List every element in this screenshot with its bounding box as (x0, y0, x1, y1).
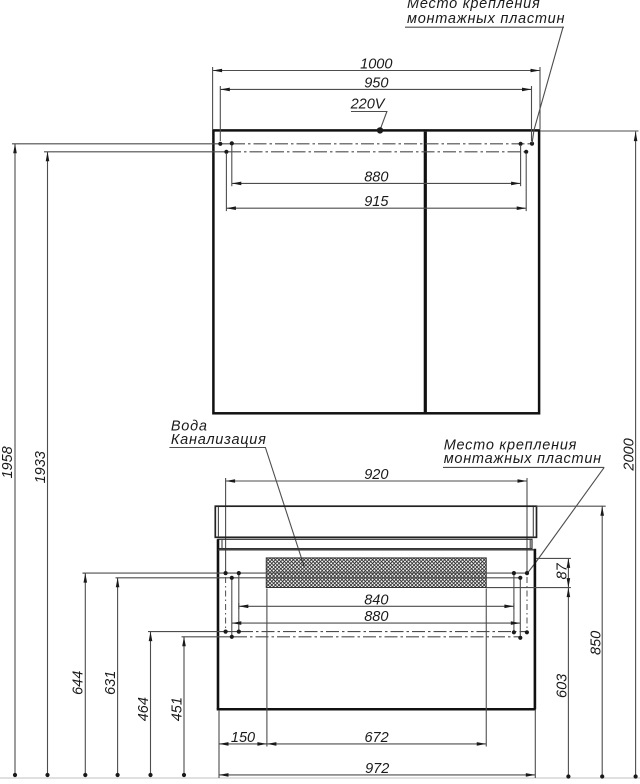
svg-text:644: 644 (71, 671, 87, 695)
svg-text:840: 840 (364, 592, 388, 608)
svg-text:451: 451 (169, 697, 185, 721)
svg-text:672: 672 (364, 730, 388, 746)
svg-text:850: 850 (588, 631, 604, 655)
svg-text:915: 915 (364, 194, 389, 210)
svg-text:монтажных пластин: монтажных пластин (444, 451, 602, 467)
svg-text:950: 950 (364, 75, 388, 91)
svg-text:1000: 1000 (360, 57, 392, 73)
svg-text:1958: 1958 (0, 446, 16, 478)
svg-text:220V: 220V (350, 96, 386, 112)
svg-text:150: 150 (231, 730, 255, 746)
svg-text:880: 880 (364, 169, 388, 185)
svg-text:монтажных пластин: монтажных пластин (407, 11, 565, 27)
svg-text:880: 880 (364, 609, 388, 625)
svg-text:631: 631 (103, 671, 119, 695)
svg-text:2000: 2000 (622, 438, 638, 471)
svg-text:603: 603 (555, 674, 571, 698)
svg-text:Канализация: Канализация (171, 432, 267, 448)
svg-text:87: 87 (555, 562, 571, 579)
svg-text:972: 972 (365, 761, 389, 777)
svg-text:1933: 1933 (33, 451, 49, 483)
svg-text:920: 920 (364, 467, 388, 483)
svg-text:464: 464 (136, 697, 152, 721)
